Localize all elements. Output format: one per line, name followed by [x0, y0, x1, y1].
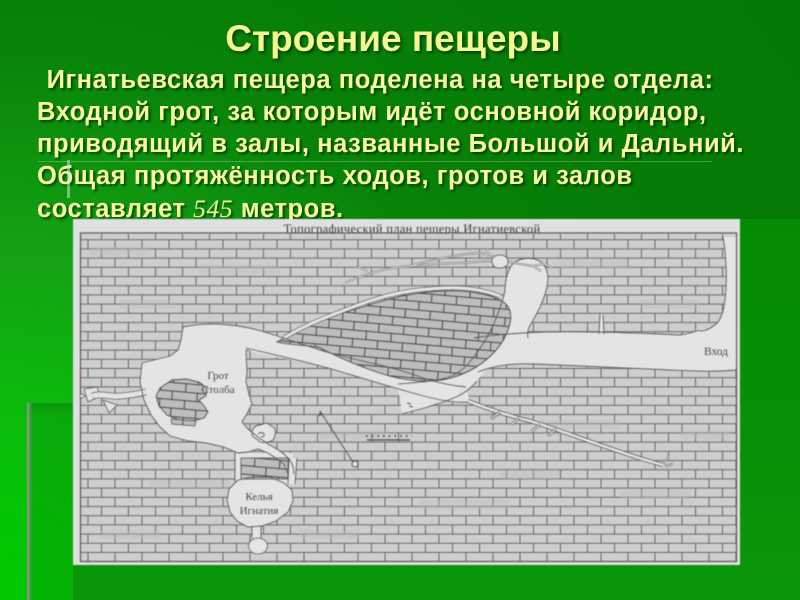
svg-text:Топографический план пещеры Иг: Топографический план пещеры Игнатиевской	[284, 222, 541, 236]
svg-text:Вход: Вход	[704, 346, 728, 358]
svg-text:Грот: Грот	[207, 370, 229, 382]
svg-text:Келья: Келья	[245, 491, 272, 503]
svg-text:Столба: Столба	[201, 384, 234, 396]
svg-text:Игнатия: Игнатия	[240, 505, 279, 517]
